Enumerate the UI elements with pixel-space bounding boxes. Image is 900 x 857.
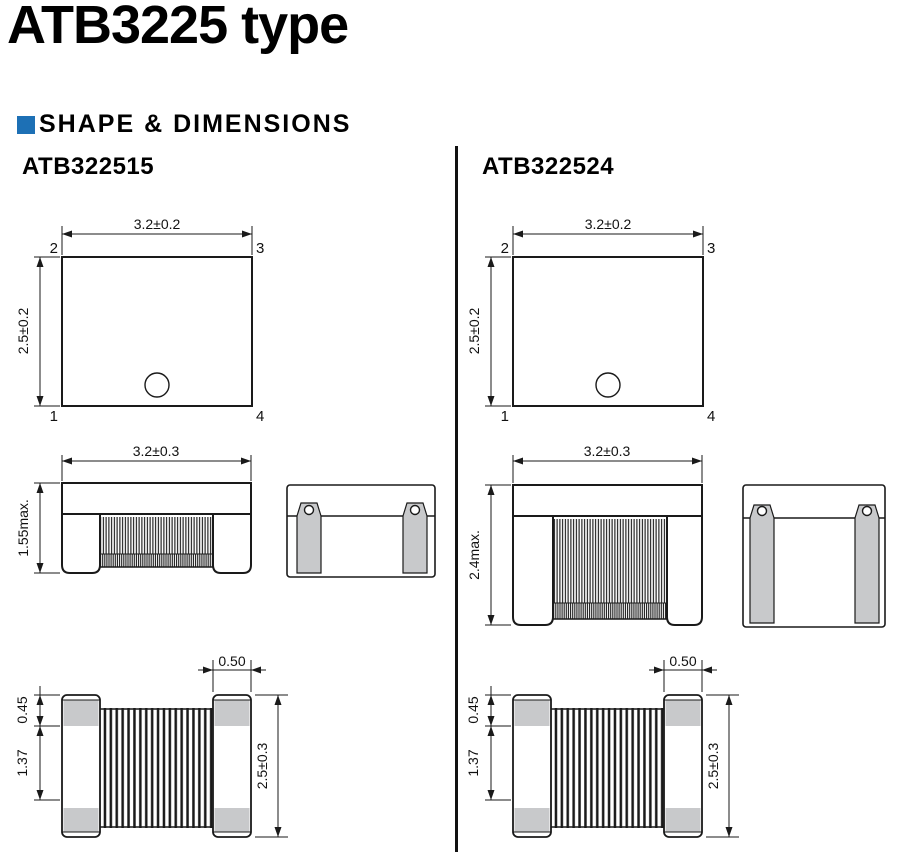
height-dimension: 1.55max. xyxy=(15,483,60,573)
height-dimension: 2.5±0.3 xyxy=(254,695,288,837)
dimension-label: 2.5±0.2 xyxy=(15,307,31,354)
winding xyxy=(100,708,213,828)
pin-number: 1 xyxy=(501,408,509,425)
dimension-label: 1.37 xyxy=(465,749,481,776)
dimension-label: 0.50 xyxy=(218,653,245,669)
part-heading-left: ATB322515 xyxy=(22,153,154,181)
core-cap-outline xyxy=(513,485,702,516)
winding xyxy=(553,519,667,619)
terminal-width-dimension: 0.50 xyxy=(198,653,266,692)
dimension-label: 3.2±0.3 xyxy=(584,443,631,459)
winding xyxy=(100,517,213,567)
dimension-label: 0.50 xyxy=(669,653,696,669)
left-leg-outline xyxy=(62,514,100,573)
dimension-label: 2.5±0.3 xyxy=(705,742,721,789)
front-view-drawing-right: 3.2±0.3 2.4max. xyxy=(465,443,711,635)
height-dimension: 2.5±0.3 xyxy=(705,695,739,837)
dimension-label: 2.5±0.2 xyxy=(466,307,482,354)
end-view-drawing-right xyxy=(741,483,889,631)
dimension-label: 2.4max. xyxy=(466,530,482,580)
height-dimension: 2.4max. xyxy=(466,485,511,625)
terminal-width-dimension: 0.50 xyxy=(649,653,717,692)
pin-number: 2 xyxy=(50,240,58,257)
dimension-label: 1.55max. xyxy=(15,499,31,557)
pin-number: 4 xyxy=(707,408,715,425)
width-dimension: 3.2±0.3 xyxy=(513,443,702,483)
section-bullet-icon xyxy=(17,116,35,134)
dimension-label: 0.45 xyxy=(465,696,481,723)
width-dimension: 3.2±0.2 xyxy=(513,216,703,255)
top-view-drawing-left: 3.2±0.2 2.5±0.2 2 3 1 4 xyxy=(14,205,290,435)
dimension-label: 3.2±0.2 xyxy=(585,216,632,232)
pin-number: 1 xyxy=(50,408,58,425)
right-leg-outline xyxy=(213,514,251,573)
front-view-drawing-left: 3.2±0.3 1.55max. xyxy=(14,443,260,583)
winding xyxy=(551,708,664,828)
bottom-view-drawing-left: 0.50 0.45 1.37 xyxy=(14,648,300,853)
pin-number: 2 xyxy=(501,240,509,257)
index-hole xyxy=(596,373,620,397)
dimension-label: 1.37 xyxy=(14,749,30,776)
left-terminal-block xyxy=(513,695,551,837)
bottom-view-drawing-right: 0.50 0.45 1.37 xyxy=(465,648,751,853)
section-header: SHAPE & DIMENSIONS xyxy=(17,110,351,139)
terminal-hole xyxy=(758,507,767,516)
top-view-drawing-right: 3.2±0.2 2.5±0.2 2 3 1 4 xyxy=(465,205,741,435)
width-dimension: 3.2±0.3 xyxy=(62,443,251,481)
right-terminal xyxy=(855,505,879,623)
pad-dimension: 0.45 1.37 xyxy=(14,686,60,800)
right-terminal-block xyxy=(664,695,702,837)
page-title: ATB3225 type xyxy=(7,0,348,56)
terminal-hole xyxy=(411,506,420,515)
pad-dimension: 0.45 1.37 xyxy=(465,686,511,800)
dimension-label: 3.2±0.3 xyxy=(133,443,180,459)
right-terminal-block xyxy=(213,695,251,837)
pin-number: 3 xyxy=(256,240,264,257)
dimension-label: 3.2±0.2 xyxy=(134,216,181,232)
height-dimension: 2.5±0.2 xyxy=(466,257,511,406)
index-hole xyxy=(145,373,169,397)
section-title: SHAPE & DIMENSIONS xyxy=(39,110,351,139)
end-view-drawing-left xyxy=(285,483,441,583)
part-heading-right: ATB322524 xyxy=(482,153,614,181)
pin-number: 4 xyxy=(256,408,264,425)
left-terminal xyxy=(750,505,774,623)
dimension-label: 2.5±0.3 xyxy=(254,742,270,789)
terminal-hole xyxy=(863,507,872,516)
height-dimension: 2.5±0.2 xyxy=(15,257,60,406)
pin-number: 3 xyxy=(707,240,715,257)
terminal-hole xyxy=(305,506,314,515)
width-dimension: 3.2±0.2 xyxy=(62,216,252,255)
right-leg-outline xyxy=(667,516,702,625)
dimension-label: 0.45 xyxy=(14,696,30,723)
column-divider xyxy=(455,146,458,852)
left-leg-outline xyxy=(513,516,553,625)
core-cap-outline xyxy=(62,483,251,514)
left-terminal-block xyxy=(62,695,100,837)
